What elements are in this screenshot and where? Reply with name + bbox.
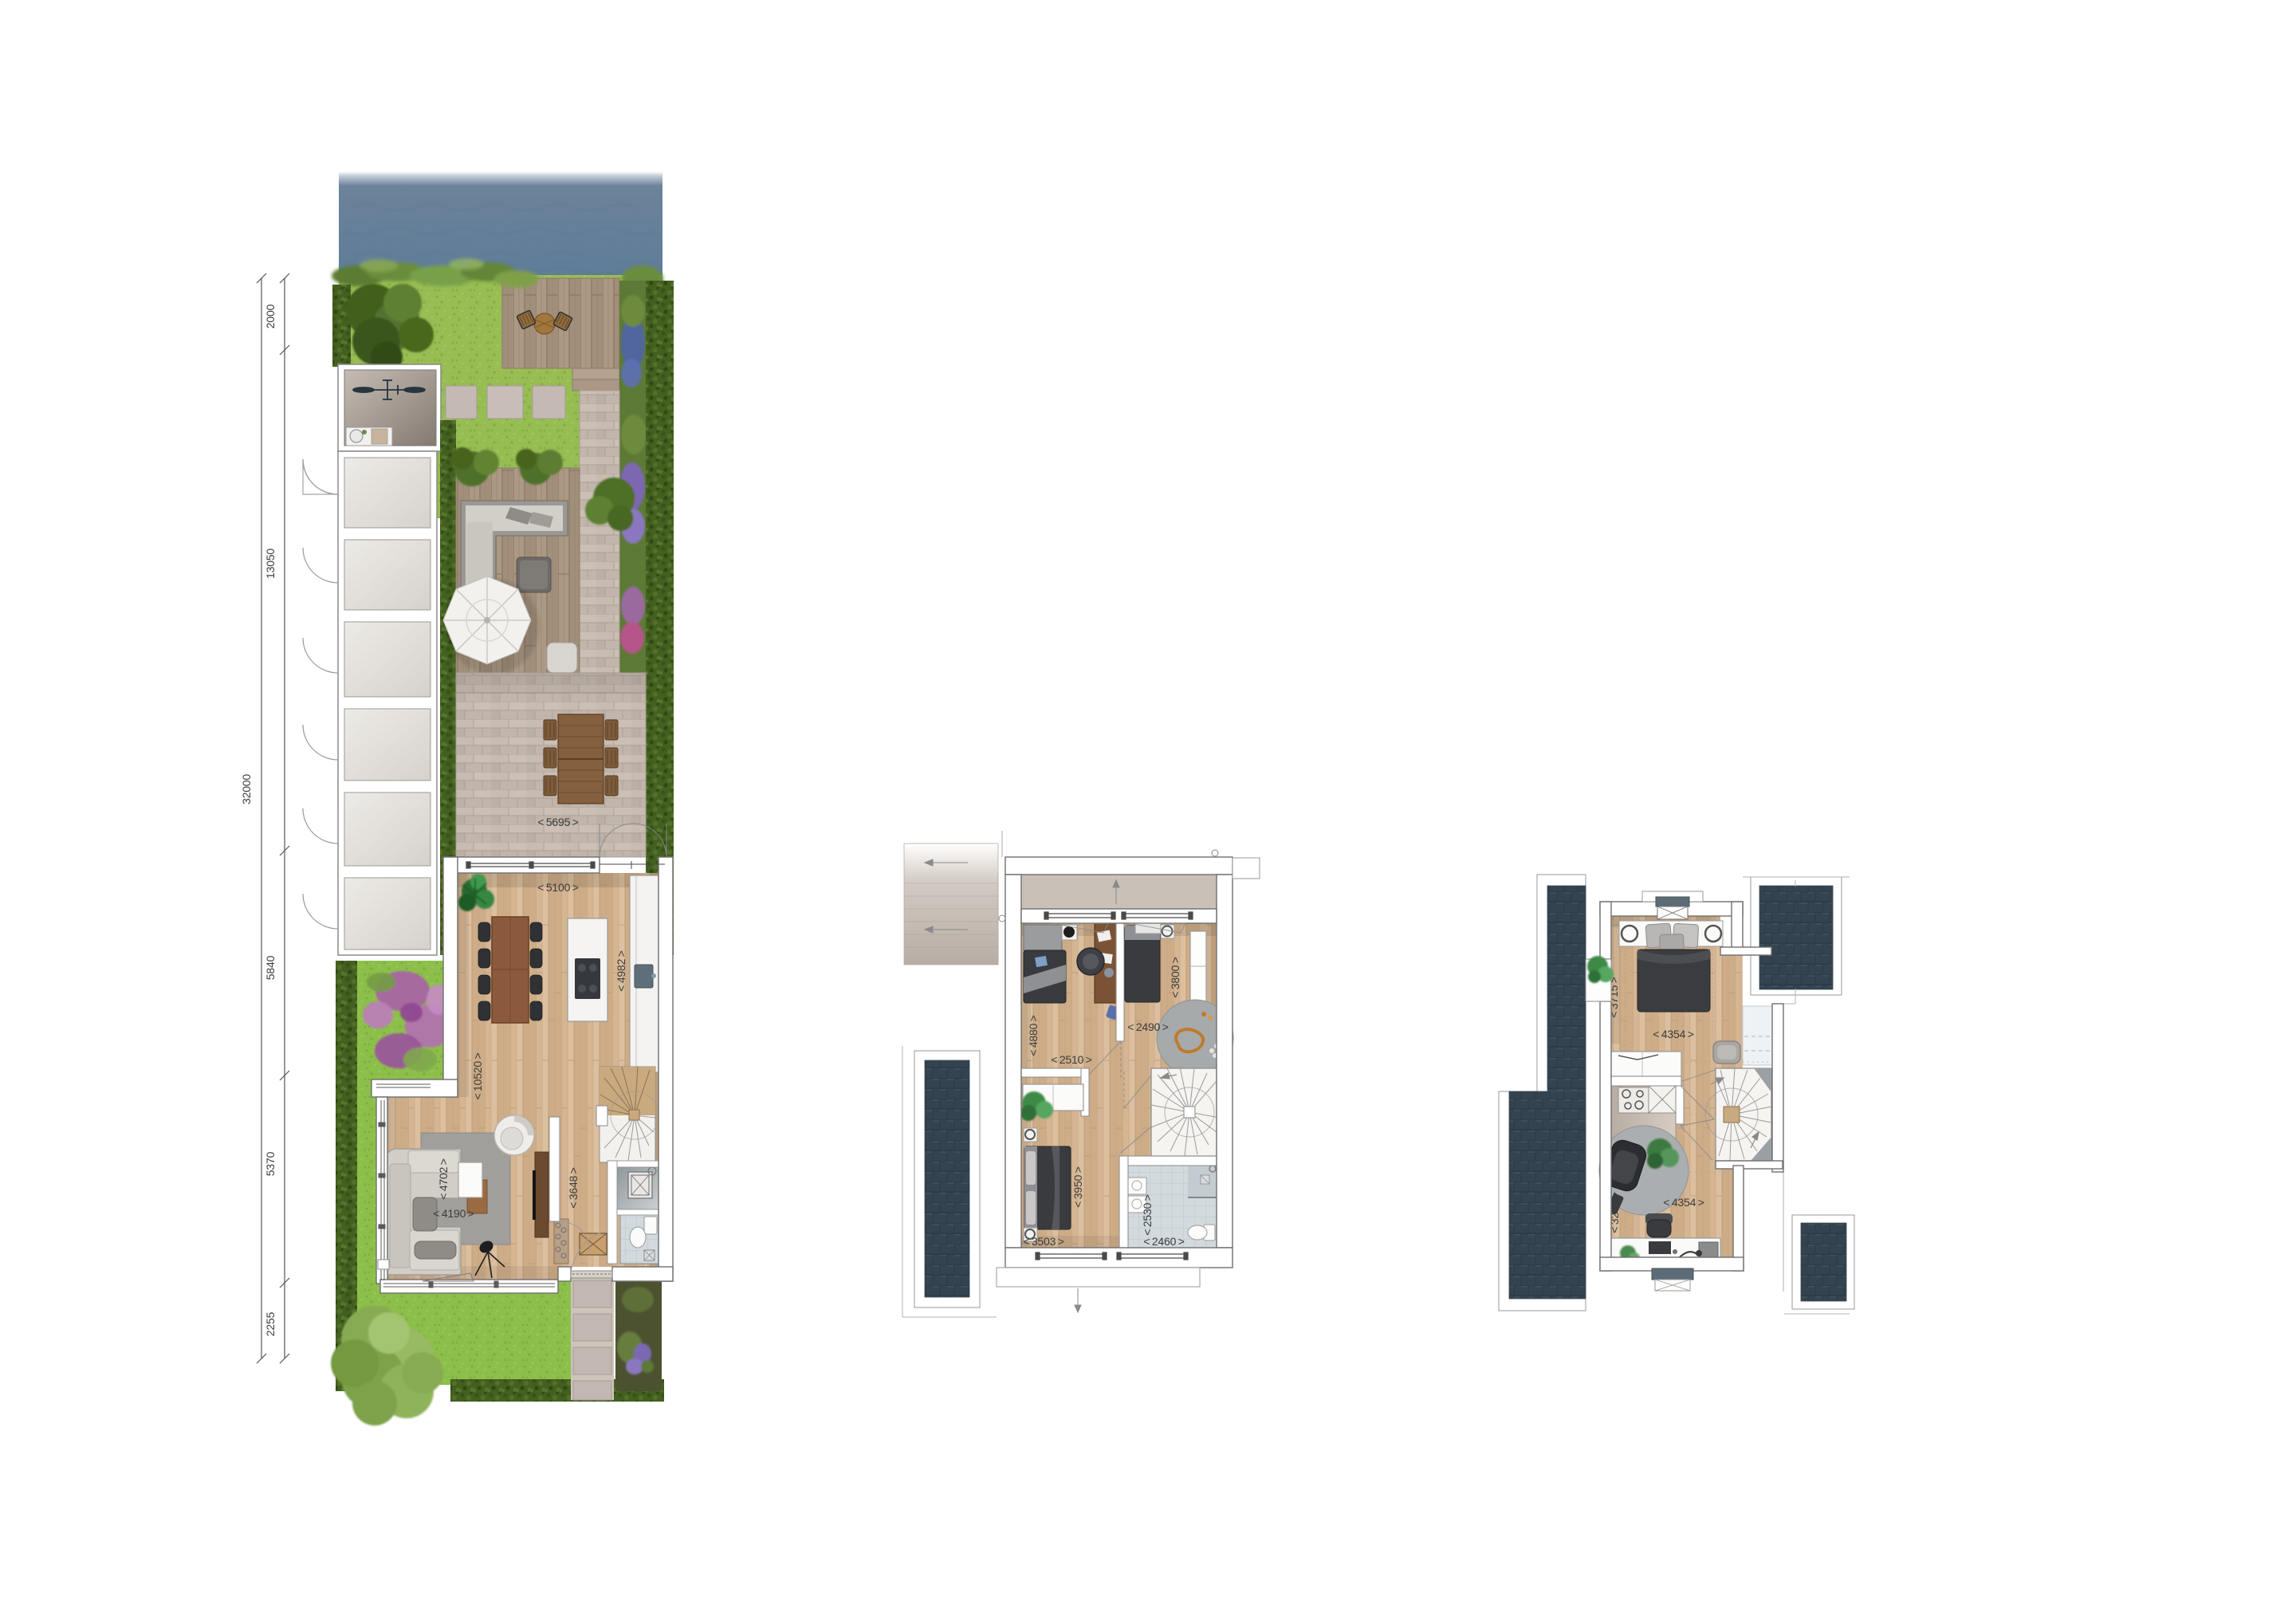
svg-text:< 2490 >: < 2490 > [1127, 1020, 1169, 1033]
svg-text:2000: 2000 [264, 304, 277, 328]
svg-text:< 4354 >: < 4354 > [1663, 1196, 1704, 1209]
svg-text:2255: 2255 [264, 1311, 277, 1336]
svg-text:< 2510 >: < 2510 > [1051, 1053, 1092, 1066]
svg-text:< 3950 >: < 3950 > [1071, 1166, 1084, 1208]
svg-text:5370: 5370 [264, 1151, 277, 1176]
svg-text:< 10520 >: < 10520 > [471, 1052, 484, 1099]
svg-text:13050: 13050 [264, 549, 277, 579]
svg-text:< 2530 >: < 2530 > [1141, 1194, 1154, 1236]
svg-text:< 4354 >: < 4354 > [1653, 1028, 1694, 1040]
svg-text:< 4190 >: < 4190 > [433, 1207, 474, 1220]
svg-text:< 5695 >: < 5695 > [537, 816, 579, 828]
svg-text:< 4982 >: < 4982 > [615, 950, 627, 992]
svg-text:< 4702 >: < 4702 > [437, 1158, 450, 1200]
svg-text:< 3503 >: < 3503 > [1023, 1235, 1064, 1248]
svg-text:< 3800 >: < 3800 > [1169, 957, 1181, 998]
svg-text:< 2460 >: < 2460 > [1143, 1235, 1185, 1248]
svg-text:< 4880 >: < 4880 > [1027, 1015, 1040, 1056]
svg-text:32000: 32000 [240, 774, 253, 804]
svg-text:5840: 5840 [264, 955, 277, 980]
svg-text:< 3648 >: < 3648 > [567, 1167, 580, 1209]
svg-text:< 5100 >: < 5100 > [537, 881, 579, 894]
